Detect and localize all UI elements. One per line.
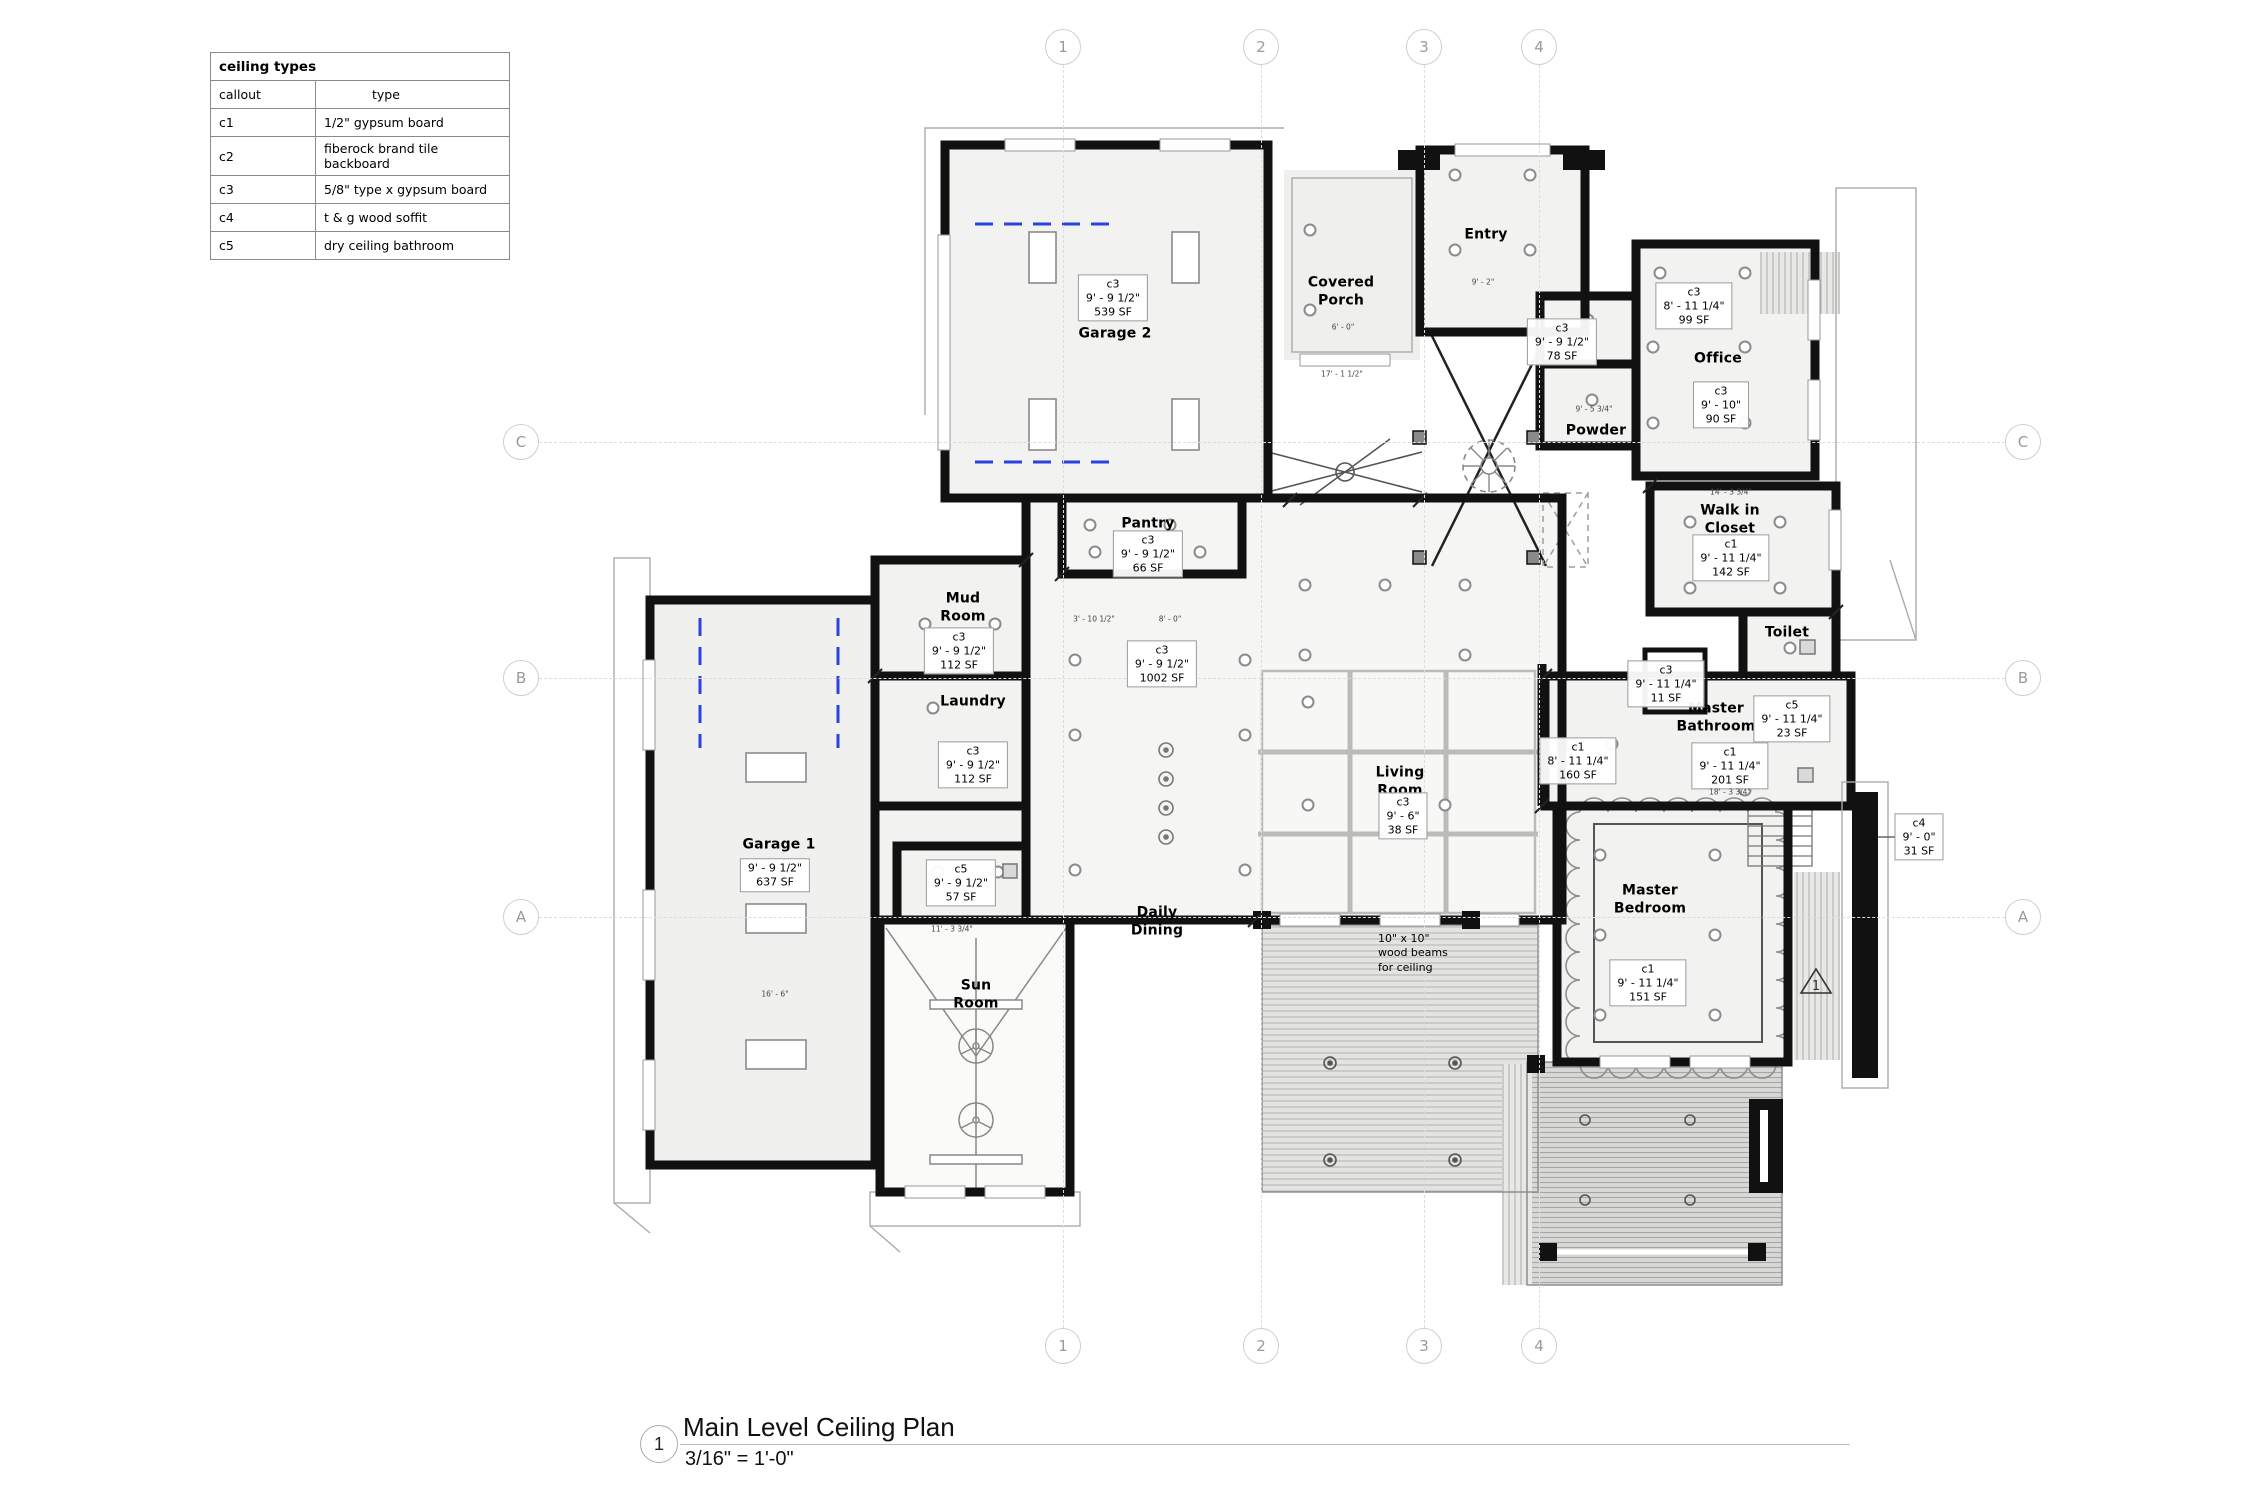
chandelier-symbol (1463, 440, 1515, 492)
room-label: Entry (1464, 226, 1507, 244)
legend-row: c5dry ceiling bathroom (211, 232, 510, 260)
ceiling-callout: c3 8' - 11 1/4" 99 SF (1655, 282, 1732, 329)
legend-col-type: type (316, 81, 510, 109)
ceiling-callout: c3 9' - 6" 38 SF (1378, 792, 1427, 839)
ceiling-callout: c5 9' - 11 1/4" 23 SF (1753, 695, 1830, 742)
legend-callout: c2 (211, 137, 316, 176)
plan-note: 10" x 10" wood beams for ceiling (1378, 932, 1448, 975)
room-label: Covered Porch (1308, 275, 1374, 310)
ceiling-types-legend: ceiling types callout type c11/2" gypsum… (210, 52, 510, 260)
grid-line-vertical (1261, 65, 1262, 1328)
ceiling-callout: c1 9' - 11 1/4" 142 SF (1692, 534, 1769, 581)
ceiling-callout: c3 9' - 9 1/2" 78 SF (1527, 318, 1597, 365)
ceiling-callout: c1 9' - 11 1/4" 201 SF (1691, 742, 1768, 789)
grid-line-horizontal (539, 917, 2005, 918)
revision-number: 1 (1812, 979, 1820, 994)
legend-row: c35/8" type x gypsum board (211, 176, 510, 204)
room-label: Daily Dining (1131, 905, 1183, 940)
grid-bubble-left: A (503, 899, 539, 935)
grid-bubble-top: 2 (1243, 29, 1279, 65)
grid-bubble-top: 4 (1521, 29, 1557, 65)
grid-bubble-bottom: 2 (1243, 1328, 1279, 1364)
grid-bubble-bottom: 1 (1045, 1328, 1081, 1364)
legend-body: ceiling types callout type c11/2" gypsum… (211, 53, 510, 260)
room-label: Walk in Closet (1700, 503, 1760, 538)
room-label: Sun Room (953, 978, 998, 1013)
room-label: Laundry (940, 693, 1006, 711)
dimension-label: 14' - 3 3/4" (1710, 488, 1752, 497)
room-label: Toilet (1765, 624, 1809, 642)
grid-bubble-left: B (503, 660, 539, 696)
grid-line-horizontal (539, 678, 2005, 679)
dimension-label: 18' - 3 3/4" (1709, 788, 1751, 797)
grid-line-vertical (1063, 65, 1064, 1328)
room-label: Garage 2 (1078, 325, 1151, 343)
dimension-label: 17' - 1 1/2" (1321, 370, 1363, 379)
ceiling-callout: c3 9' - 9 1/2" 112 SF (924, 627, 994, 674)
dimension-label: 16' - 6" (761, 990, 788, 999)
drawing-sheet: ceiling types callout type c11/2" gypsum… (0, 0, 2250, 1501)
dimension-label: 8' - 0" (1159, 615, 1182, 624)
dimension-label: 9' - 5 3/4" (1576, 405, 1613, 414)
legend-callout: c3 (211, 176, 316, 204)
grid-bubble-right: A (2005, 899, 2041, 935)
legend-title: ceiling types (211, 53, 510, 81)
ceiling-callout: c3 9' - 9 1/2" 66 SF (1113, 530, 1183, 577)
ceiling-callout: c3 9' - 9 1/2" 1002 SF (1127, 640, 1197, 687)
grid-bubble-right: C (2005, 424, 2041, 460)
legend-callout: c5 (211, 232, 316, 260)
dimension-label: 11' - 3 3/4" (931, 925, 973, 934)
grid-bubble-bottom: 3 (1406, 1328, 1442, 1364)
legend-row: c2fiberock brand tile backboard (211, 137, 510, 176)
legend-type: 1/2" gypsum board (316, 109, 510, 137)
room-label: Garage 1 (742, 836, 815, 854)
grid-line-horizontal (539, 442, 2005, 443)
grid-bubble-top: 1 (1045, 29, 1081, 65)
ceiling-callout: c3 9' - 11 1/4" 11 SF (1627, 660, 1704, 707)
grid-bubble-right: B (2005, 660, 2041, 696)
ceiling-callout: c1 9' - 11 1/4" 151 SF (1609, 959, 1686, 1006)
legend-row: c11/2" gypsum board (211, 109, 510, 137)
grid-bubble-left: C (503, 424, 539, 460)
grid-line-vertical (1539, 65, 1540, 1328)
legend-type: t & g wood soffit (316, 204, 510, 232)
ceiling-callout: c1 8' - 11 1/4" 160 SF (1539, 737, 1616, 784)
legend-callout: c4 (211, 204, 316, 232)
legend-type: dry ceiling bathroom (316, 232, 510, 260)
room-label: Master Bedroom (1614, 883, 1686, 918)
ceiling-callout: c3 9' - 9 1/2" 539 SF (1078, 274, 1148, 321)
dimension-label: 3' - 10 1/2" (1073, 615, 1115, 624)
room-label: Mud Room (940, 591, 985, 626)
ceiling-callout: c3 9' - 10" 90 SF (1693, 381, 1749, 428)
dimension-label: 6' - 0" (1332, 323, 1355, 332)
grid-line-vertical (1424, 65, 1425, 1328)
room-label: Powder (1566, 422, 1626, 440)
ceiling-callout: c4 9' - 0" 31 SF (1894, 813, 1943, 860)
legend-callout: c1 (211, 109, 316, 137)
dimension-label: 9' - 2" (1472, 278, 1495, 287)
legend-col-callout: callout (211, 81, 316, 109)
grid-bubble-top: 3 (1406, 29, 1442, 65)
room-label: Office (1694, 350, 1742, 368)
ceiling-callout: 9' - 9 1/2" 637 SF (740, 858, 810, 892)
legend-type: fiberock brand tile backboard (316, 137, 510, 176)
legend-row: c4t & g wood soffit (211, 204, 510, 232)
legend-type: 5/8" type x gypsum board (316, 176, 510, 204)
ceiling-callout: c5 9' - 9 1/2" 57 SF (926, 859, 996, 906)
ceiling-callout: c3 9' - 9 1/2" 112 SF (938, 741, 1008, 788)
grid-bubble-bottom: 4 (1521, 1328, 1557, 1364)
